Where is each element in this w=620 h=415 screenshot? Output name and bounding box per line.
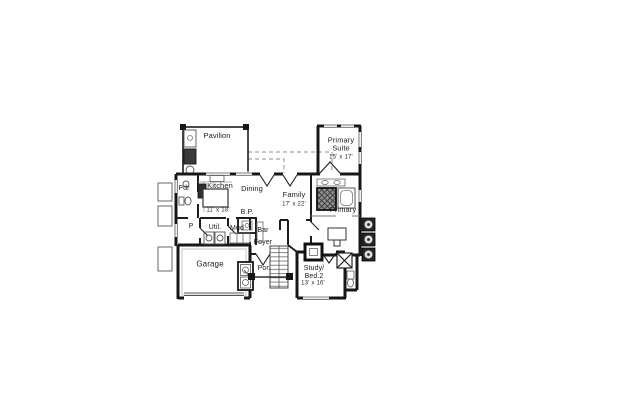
mud-bench bbox=[230, 233, 250, 243]
room-label-porch: Por. bbox=[258, 265, 271, 273]
hvac-condensers bbox=[362, 218, 375, 261]
closet-island bbox=[328, 228, 346, 246]
room-label-mud: Mud bbox=[230, 225, 244, 233]
room-label-garage: Garage bbox=[196, 261, 223, 270]
room-dims-kitchen: 11' x 18' bbox=[206, 208, 229, 215]
kitchen-island bbox=[203, 189, 228, 207]
room-label-utility: Util. bbox=[209, 224, 222, 232]
room-dims-primary-suite: 15' x 17' bbox=[329, 155, 353, 162]
study-closet-xbox bbox=[337, 253, 352, 268]
room-label-pdr: Pdr bbox=[178, 185, 189, 193]
floor-plan-canvas: Pavilion Primary Suite 15' x 17' Pdr Kit… bbox=[0, 0, 620, 415]
room-label-primary-bath: Primary bbox=[330, 206, 357, 214]
room-label-study: Study/ Bed.2 bbox=[304, 265, 324, 281]
staircase bbox=[270, 246, 288, 288]
room-label-pantry: P bbox=[189, 223, 194, 231]
pavilion-outdoor-kitchen bbox=[184, 130, 196, 174]
room-label-family: Family bbox=[283, 191, 306, 199]
utility-appliances bbox=[204, 232, 225, 244]
roof-overhang-dashed-lines bbox=[248, 152, 332, 173]
floor-plan-drawing bbox=[0, 0, 620, 415]
room-label-dining: Dining bbox=[241, 185, 263, 193]
room-label-bar: Bar bbox=[257, 227, 268, 235]
garage-door-opening bbox=[184, 296, 244, 299]
exterior-pads bbox=[158, 183, 172, 271]
shaft-box bbox=[305, 244, 322, 260]
room-label-butlers-pantry: B.P. bbox=[241, 209, 254, 217]
room-dims-study: 13' x 16' bbox=[301, 281, 325, 288]
garage-details bbox=[182, 249, 253, 300]
room-dims-family: 17' x 22' bbox=[282, 202, 306, 209]
room-label-kitchen: Kitchen bbox=[207, 182, 233, 190]
room-label-primary-suite: Primary Suite bbox=[328, 137, 355, 154]
room-label-pavilion: Pavilion bbox=[203, 132, 230, 140]
room-label-foyer: Foyer bbox=[254, 239, 272, 247]
study-bath-fixtures bbox=[347, 271, 354, 287]
